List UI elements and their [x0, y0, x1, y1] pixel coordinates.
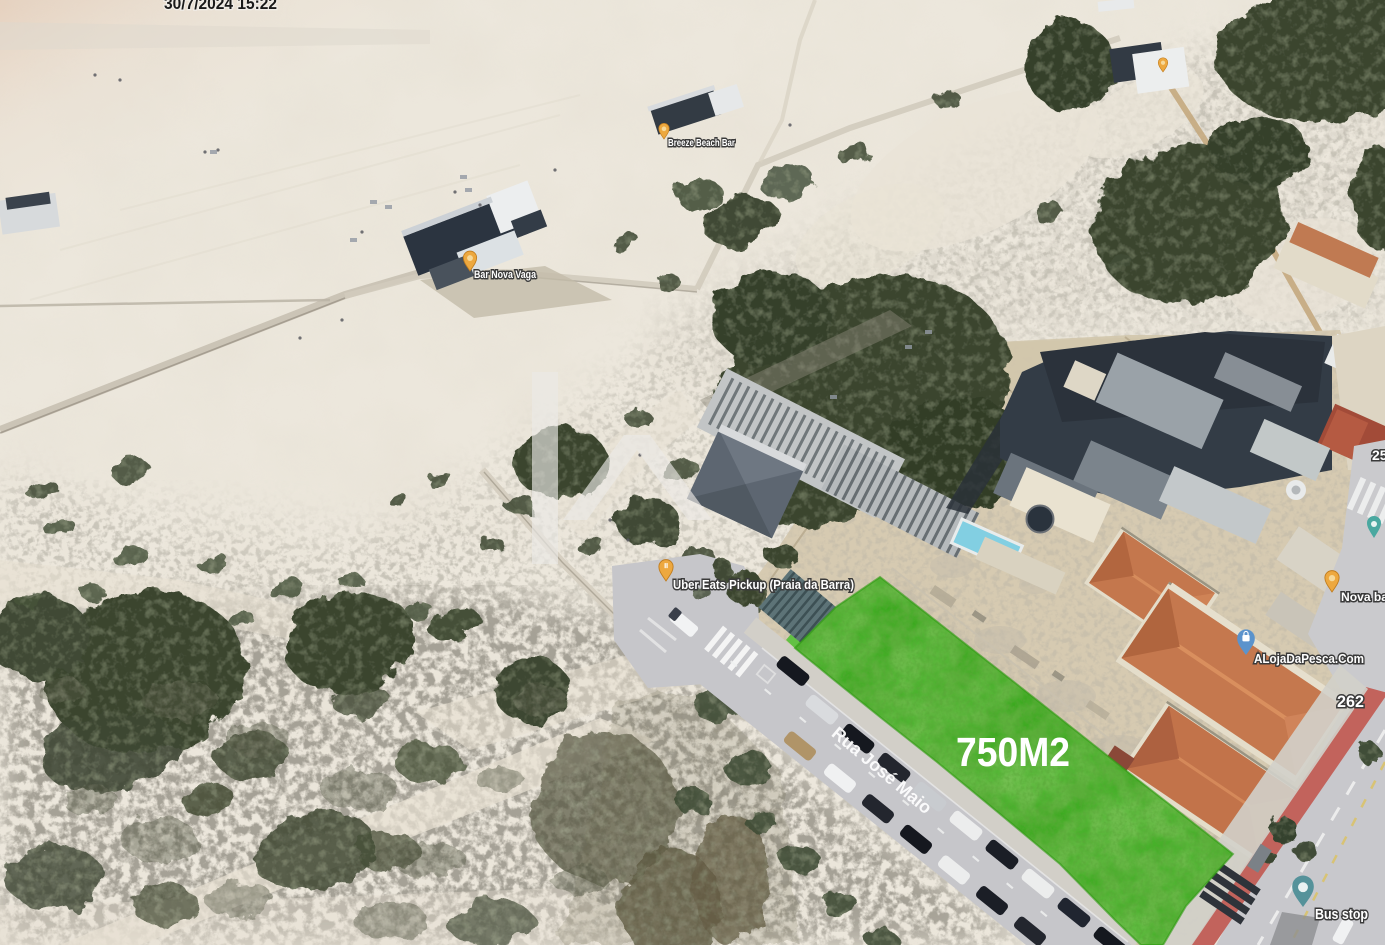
svg-text:ALojaDaPesca.Com: ALojaDaPesca.Com: [1254, 651, 1364, 666]
svg-text:Bar Nova Vaga: Bar Nova Vaga: [474, 269, 537, 281]
svg-text:25: 25: [1372, 447, 1385, 463]
svg-text:30/7/2024 15:22: 30/7/2024 15:22: [164, 0, 277, 13]
svg-text:262: 262: [1337, 693, 1364, 711]
svg-text:Breeze Beach Bar: Breeze Beach Bar: [668, 137, 735, 149]
svg-text:Uber Eats Pickup (Praia da Bar: Uber Eats Pickup (Praia da Barra): [673, 577, 854, 592]
svg-text:Bus stop: Bus stop: [1315, 907, 1368, 923]
svg-text:Nova ba: Nova ba: [1341, 590, 1385, 604]
svg-text:750M2: 750M2: [956, 729, 1070, 775]
